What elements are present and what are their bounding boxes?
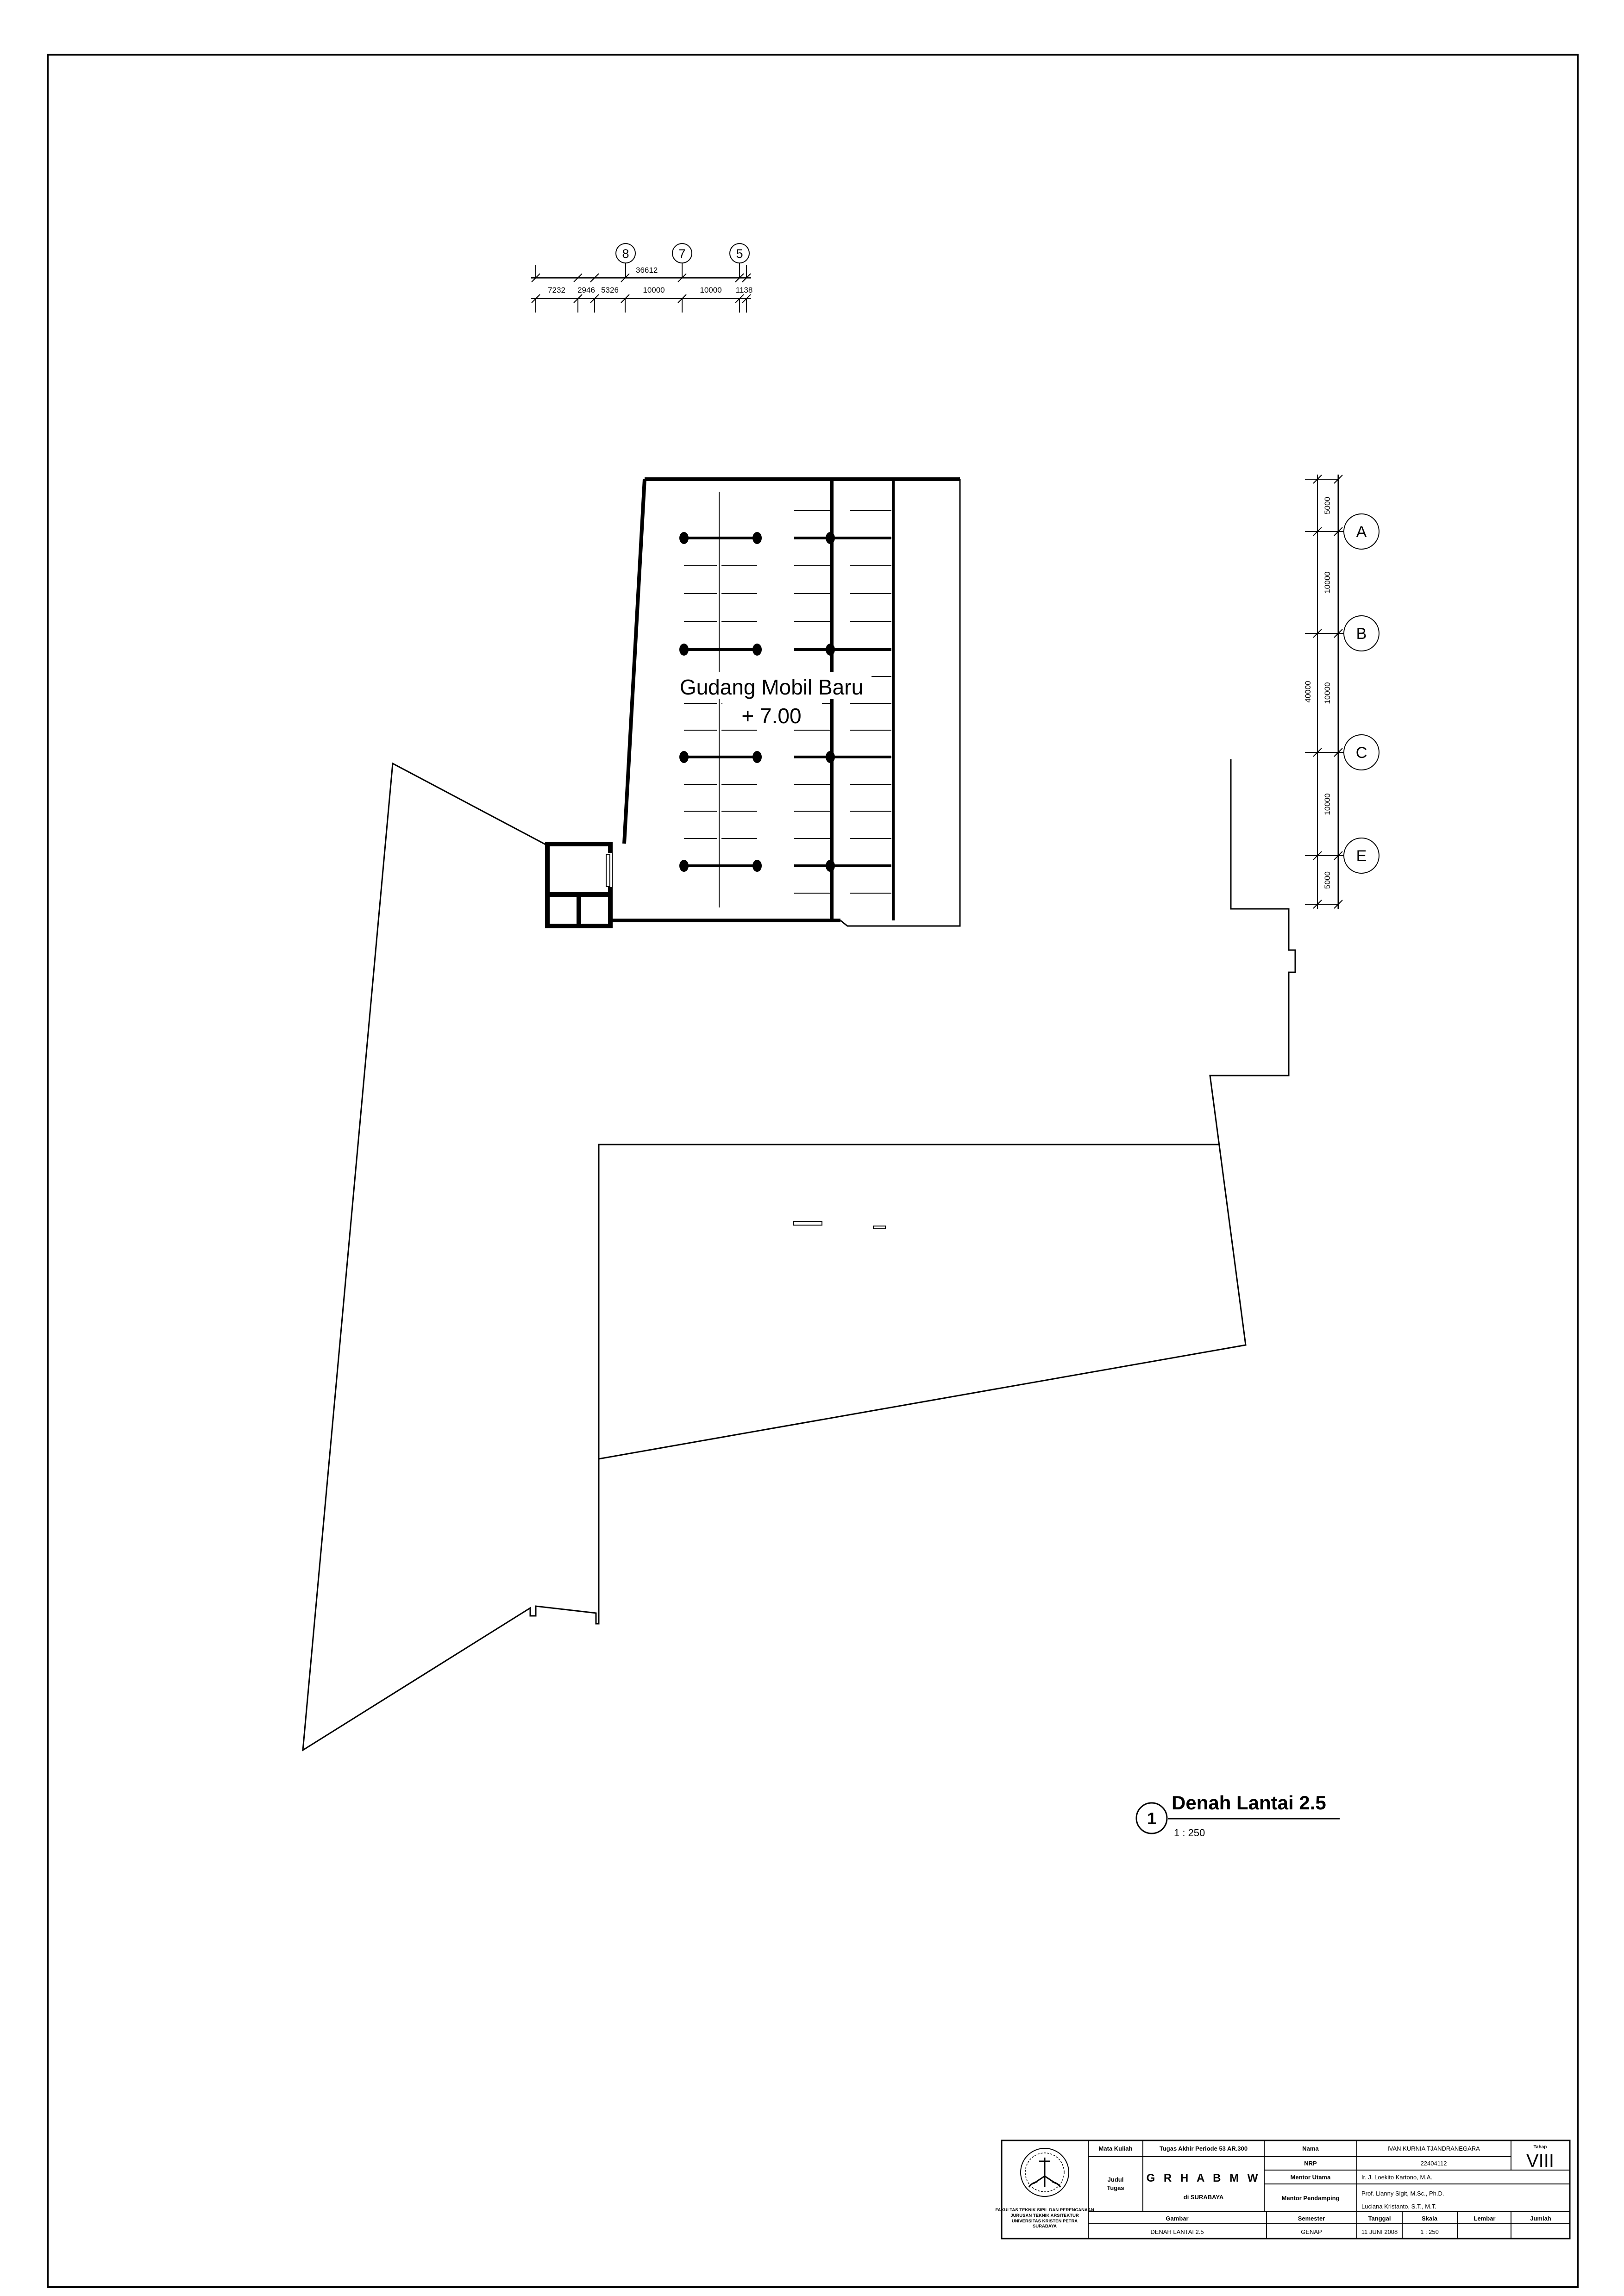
- view-title: 1 Denah Lantai 2.5 1 : 250: [1136, 1792, 1340, 1839]
- mentor-pendamping-value-2: Luciana Kristanto, S.T., M.T.: [1361, 2203, 1436, 2210]
- view-number: 1: [1147, 1809, 1156, 1828]
- tanggal-value: 11 JUNI 2008: [1361, 2228, 1398, 2235]
- right-dim-seg3: 10000: [1323, 682, 1332, 704]
- page-border: [48, 55, 1578, 2287]
- project-title: G R H A B M W: [1147, 2172, 1261, 2184]
- title-block-horizontals: [1088, 2157, 1570, 2224]
- nrp-label: NRP: [1304, 2160, 1317, 2167]
- project-location: di SURABAYA: [1184, 2194, 1224, 2201]
- grid-bubble-A-label: A: [1356, 523, 1367, 541]
- right-dim-seg1: 5000: [1323, 497, 1332, 514]
- institution-line-1: FAKULTAS TEKNIK SIPIL DAN PERENCANAAN: [995, 2208, 1094, 2213]
- semester-value: GENAP: [1301, 2228, 1322, 2235]
- drawing-sheet: 36612 7232 2946 5326 10000 10000 1138 8 …: [0, 0, 1624, 2296]
- lembar-label: Lembar: [1474, 2215, 1496, 2222]
- top-dimension-strip: 36612 7232 2946 5326 10000 10000 1138 8 …: [531, 244, 752, 313]
- door-mark-1: [793, 1221, 822, 1225]
- judul-tugas-label-1: Judul: [1108, 2176, 1124, 2183]
- gambar-label: Gambar: [1166, 2215, 1188, 2222]
- institution-line-4: SURABAYA: [1033, 2224, 1057, 2229]
- top-dim-seg4: 10000: [643, 286, 665, 294]
- nama-value: IVAN KURNIA TJANDRANEGARA: [1387, 2145, 1480, 2152]
- room-label: Gudang Mobil Baru: [680, 675, 863, 699]
- mentor-utama-label: Mentor Utama: [1291, 2174, 1331, 2181]
- parking-deck: Gudang Mobil Baru + 7.00: [610, 479, 960, 926]
- title-block: FAKULTAS TEKNIK SIPIL DAN PERENCANAAN JU…: [995, 2140, 1570, 2239]
- skala-label: Skala: [1422, 2215, 1438, 2222]
- mentor-utama-value: Ir. J. Loekito Kartono, M.A.: [1361, 2174, 1432, 2181]
- top-dim-total: 36612: [636, 266, 658, 275]
- mentor-pendamping-label: Mentor Pendamping: [1282, 2195, 1340, 2202]
- gambar-value: DENAH LANTAI 2.5: [1150, 2228, 1204, 2235]
- parking-stripes-bank3: [850, 511, 891, 893]
- grid-bubble-E-label: E: [1356, 847, 1367, 865]
- tahap-label: Tahap: [1534, 2145, 1547, 2150]
- right-dim-seg5: 5000: [1323, 871, 1332, 889]
- grid-bubble-C-label: C: [1356, 744, 1367, 762]
- right-dim-total: 40000: [1304, 681, 1312, 702]
- top-dim-seg2: 2946: [577, 286, 595, 294]
- right-dim-seg4: 10000: [1323, 793, 1332, 815]
- right-dim-seg2: 10000: [1323, 571, 1332, 593]
- mata-kuliah-value: Tugas Akhir Periode 53 AR.300: [1160, 2145, 1248, 2152]
- grid-bubble-8-label: 8: [622, 247, 629, 261]
- door-mark-2: [873, 1226, 885, 1229]
- top-dim-seg5: 10000: [700, 286, 721, 294]
- institution-line-3: UNIVERSITAS KRISTEN PETRA: [1012, 2219, 1078, 2224]
- tanggal-label: Tanggal: [1368, 2215, 1391, 2222]
- judul-tugas-label-2: Tugas: [1107, 2184, 1124, 2191]
- jumlah-label: Jumlah: [1530, 2215, 1551, 2222]
- mentor-pendamping-value-1: Prof. Lianny Sigit, M.Sc., Ph.D.: [1361, 2190, 1444, 2197]
- top-dim-seg1: 7232: [548, 286, 565, 294]
- semester-label: Semester: [1298, 2215, 1325, 2222]
- grid-bubble-5-label: 5: [736, 247, 743, 261]
- skala-value: 1 : 250: [1420, 2228, 1439, 2235]
- outline-right-tower: [599, 759, 1295, 1459]
- view-scale: 1 : 250: [1174, 1827, 1205, 1839]
- outline-left-and-bottom: [303, 763, 1219, 1750]
- deck-edge-right: [840, 479, 960, 926]
- floor-outline: [303, 759, 1295, 1750]
- top-dim-seg6: 1138: [736, 286, 753, 294]
- nrp-value: 22404112: [1421, 2160, 1447, 2167]
- grid-bubble-B-label: B: [1356, 625, 1367, 643]
- right-grid-stems: [1338, 532, 1344, 856]
- stair-core: [547, 844, 612, 926]
- institution-line-2: JURUSAN TEKNIK ARSITEKTUR: [1010, 2213, 1079, 2218]
- grid-bubble-7-label: 7: [678, 247, 685, 261]
- room-level-label: + 7.00: [741, 704, 801, 728]
- view-title-text: Denah Lantai 2.5: [1172, 1792, 1326, 1814]
- institution-cell: FAKULTAS TEKNIK SIPIL DAN PERENCANAAN JU…: [995, 2148, 1094, 2229]
- right-dimension-strip: 5000 10000 10000 10000 5000 40000 A B C …: [1304, 475, 1379, 909]
- deck-wall-left-slant: [624, 479, 645, 844]
- nama-label: Nama: [1302, 2145, 1319, 2152]
- top-dim-seg3: 5326: [601, 286, 619, 294]
- tahap-value: VIII: [1526, 2151, 1554, 2171]
- logo-emblem-glyph: [1029, 2158, 1060, 2187]
- stair-core-inner-walls: [547, 895, 610, 926]
- parking-stripes-bank1-left: [684, 566, 717, 838]
- mata-kuliah-label: Mata Kuliah: [1099, 2145, 1133, 2152]
